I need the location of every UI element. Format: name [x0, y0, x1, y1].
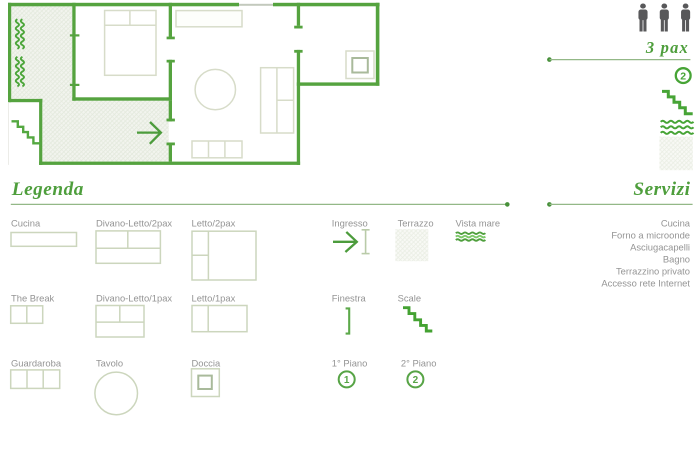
svg-text:Terrazzino privato: Terrazzino privato [616, 265, 690, 276]
svg-text:2° Piano: 2° Piano [401, 358, 437, 369]
svg-text:Guardaroba: Guardaroba [11, 358, 62, 369]
svg-text:2: 2 [413, 375, 419, 386]
svg-text:Divano-Letto/1pax: Divano-Letto/1pax [96, 293, 172, 304]
svg-text:Doccia: Doccia [192, 358, 221, 369]
svg-text:2: 2 [680, 71, 686, 83]
svg-text:3 pax: 3 pax [645, 38, 689, 57]
svg-text:1: 1 [344, 375, 350, 386]
svg-text:Accesso rete Internet: Accesso rete Internet [601, 277, 690, 288]
svg-text:Cucina: Cucina [11, 218, 41, 229]
svg-text:Ingresso: Ingresso [332, 218, 368, 229]
svg-text:1° Piano: 1° Piano [332, 358, 368, 369]
svg-text:Legenda: Legenda [11, 179, 84, 200]
svg-text:Cucina: Cucina [661, 217, 691, 228]
svg-text:Finestra: Finestra [332, 293, 367, 304]
svg-text:Tavolo: Tavolo [96, 358, 123, 369]
svg-text:Letto/2pax: Letto/2pax [192, 218, 236, 229]
svg-text:Letto/1pax: Letto/1pax [192, 293, 236, 304]
svg-text:Scale: Scale [398, 293, 421, 304]
svg-text:Servizi: Servizi [633, 179, 690, 200]
svg-text:Bagno: Bagno [663, 253, 690, 264]
svg-text:Terrazzo: Terrazzo [398, 218, 434, 229]
svg-text:Asciugacapelli: Asciugacapelli [630, 241, 690, 252]
svg-text:Vista mare: Vista mare [456, 218, 501, 229]
svg-text:Forno a microonde: Forno a microonde [611, 229, 690, 240]
svg-text:The Break: The Break [11, 293, 55, 304]
svg-text:Divano-Letto/2pax: Divano-Letto/2pax [96, 218, 172, 229]
